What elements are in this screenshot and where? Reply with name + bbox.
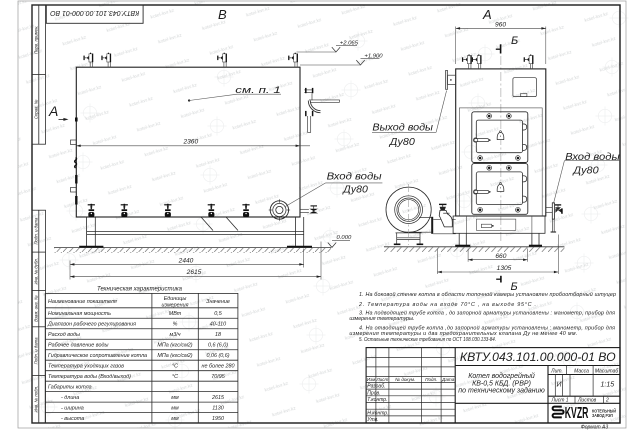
svg-text:Б: Б: [511, 281, 518, 293]
svg-text:КВТУ.043.101.00.000-01 ВО: КВТУ.043.101.00.000-01 ВО: [460, 352, 616, 364]
svg-text:0,6 (6,0): 0,6 (6,0): [208, 342, 228, 348]
svg-text:Лист 1: Лист 1: [551, 398, 569, 404]
svg-text:Н.контр.: Н.контр.: [367, 410, 388, 416]
svg-text:Техническая характеристика: Техническая характеристика: [97, 286, 183, 292]
svg-text:- ширина: - ширина: [61, 405, 84, 411]
svg-text:0,06 (0,6): 0,06 (0,6): [206, 353, 229, 359]
svg-text:Подп. и дата: Подп. и дата: [34, 217, 39, 245]
svg-text:Значение: Значение: [206, 299, 230, 305]
svg-text:KVZR: KVZR: [565, 405, 589, 422]
svg-text:Подп.: Подп.: [425, 377, 437, 382]
svg-text:1. На боковой стенке котла в: 1. На боковой стенке котла в области топ…: [359, 291, 616, 298]
svg-text:Инв. № дубл.: Инв. № дубл.: [34, 258, 39, 284]
svg-text:Т.контр.: Т.контр.: [367, 397, 387, 403]
svg-text:Перв. примен.: Перв. примен.: [34, 25, 39, 54]
svg-text:Диапазон рабочего регулировани: Диапазон рабочего регулирования: [47, 322, 136, 328]
svg-text:Дата: Дата: [441, 377, 455, 382]
svg-text:Лит.: Лит.: [550, 368, 563, 374]
svg-text:Б: Б: [511, 35, 518, 47]
svg-text:40-110: 40-110: [210, 322, 226, 328]
svg-text:Справ. №: Справ. №: [34, 99, 39, 119]
svg-text:+1.900: +1.900: [364, 54, 383, 60]
svg-text:Единицы: Единицы: [164, 296, 187, 302]
svg-text:1130: 1130: [212, 405, 224, 411]
svg-text:А: А: [48, 103, 58, 119]
svg-text:0,5: 0,5: [214, 311, 222, 317]
svg-text:2440: 2440: [178, 257, 194, 264]
svg-text:Лист: Лист: [375, 377, 388, 382]
svg-text:В: В: [218, 7, 227, 22]
svg-text:- длина: - длина: [61, 395, 79, 401]
svg-text:Пров.: Пров.: [367, 390, 380, 396]
svg-text:Ду80: Ду80: [572, 166, 599, 177]
svg-text:мм: мм: [171, 395, 179, 401]
svg-text:не более 280: не более 280: [202, 363, 235, 369]
svg-text:Взам. инв. №: Взам. инв. №: [34, 295, 39, 322]
svg-text:см. п. 1: см. п. 1: [235, 85, 280, 95]
svg-text:МВт: МВт: [169, 311, 182, 317]
svg-text:Котел водогрейный: Котел водогрейный: [468, 372, 535, 380]
svg-text:МПа (кгс/см2): МПа (кгс/см2): [157, 353, 192, 359]
svg-text:Листов: Листов: [577, 398, 597, 404]
svg-text:ЗАВОД РЭП: ЗАВОД РЭП: [592, 413, 613, 418]
svg-text:- высота: - высота: [61, 416, 84, 422]
svg-text:5. Остальные технические треб: 5. Остальные технические требования по О…: [359, 337, 496, 343]
svg-text:2. Температура воды на входе: 2. Температура воды на входе 70°С , на в…: [358, 302, 536, 308]
svg-text:Расход воды: Расход воды: [48, 332, 80, 338]
svg-text:Рабочее давление воды: Рабочее давление воды: [48, 342, 108, 348]
svg-text:Выход воды: Выход воды: [372, 123, 433, 134]
svg-text:70/95: 70/95: [211, 374, 225, 380]
svg-text:№ докум.: № докум.: [395, 377, 415, 382]
svg-text:0.000: 0.000: [337, 235, 352, 241]
svg-text:Ду80: Ду80: [342, 185, 368, 196]
svg-text:Изм: Изм: [367, 377, 376, 382]
svg-text:Габариты котла: Габариты котла: [48, 384, 92, 390]
svg-text:по техническому заданию: по техническому заданию: [458, 387, 545, 395]
svg-text:960: 960: [495, 22, 506, 29]
svg-text:КВТУ.043.101.00.000-01 ВО: КВТУ.043.101.00.000-01 ВО: [50, 9, 139, 18]
svg-text:измерения температуры.: измерения температуры.: [349, 316, 414, 322]
svg-text:Масштаб: Масштаб: [595, 368, 619, 374]
svg-text:мм: мм: [171, 416, 179, 422]
svg-text:%: %: [173, 322, 178, 328]
svg-text:Вход воды: Вход воды: [327, 172, 383, 183]
svg-text:мм: мм: [171, 405, 179, 411]
svg-text:2615: 2615: [186, 269, 202, 276]
svg-text:660: 660: [495, 253, 506, 260]
svg-text:2: 2: [605, 398, 609, 404]
svg-text:2360: 2360: [182, 139, 198, 146]
svg-text:КВ-0,5 КБД. (РВР): КВ-0,5 КБД. (РВР): [472, 380, 531, 387]
svg-text:Инв. № подл.: Инв. № подл.: [34, 386, 39, 413]
svg-text:измерения: измерения: [162, 302, 189, 308]
svg-text:Вход воды: Вход воды: [565, 152, 620, 163]
svg-text:+2.065: +2.065: [340, 40, 359, 46]
svg-text:м3/ч: м3/ч: [170, 332, 181, 338]
svg-text:МПа (кгс/см2): МПа (кгс/см2): [157, 342, 192, 348]
svg-text:Масса: Масса: [574, 368, 589, 374]
svg-text:Формат А3: Формат А3: [581, 425, 609, 430]
svg-text:°С: °С: [172, 374, 178, 380]
svg-text:°С: °С: [172, 363, 178, 369]
svg-text:Номинальная мощность: Номинальная мощность: [48, 311, 111, 317]
svg-text:1305: 1305: [497, 265, 512, 272]
svg-text:1:15: 1:15: [601, 382, 615, 389]
svg-text:Ду80: Ду80: [389, 137, 416, 148]
svg-text:Подп. и дата: Подп. и дата: [34, 337, 39, 365]
svg-text:18: 18: [215, 332, 221, 338]
svg-text:А: А: [482, 7, 492, 22]
svg-text:Температура уходящих газов: Температура уходящих газов: [48, 363, 124, 369]
svg-text:Утв.: Утв.: [367, 417, 378, 423]
svg-text:Разраб.: Разраб.: [367, 384, 385, 390]
svg-text:Гидравлическое сопротивление к: Гидравлическое сопротивление котла: [48, 353, 147, 359]
svg-text:1950: 1950: [212, 416, 224, 422]
svg-text:Наименование показателя: Наименование показателя: [48, 299, 117, 305]
svg-text:2615: 2615: [211, 395, 225, 401]
svg-text:Температура воды (Вход/выход): Температура воды (Вход/выход): [48, 374, 131, 380]
